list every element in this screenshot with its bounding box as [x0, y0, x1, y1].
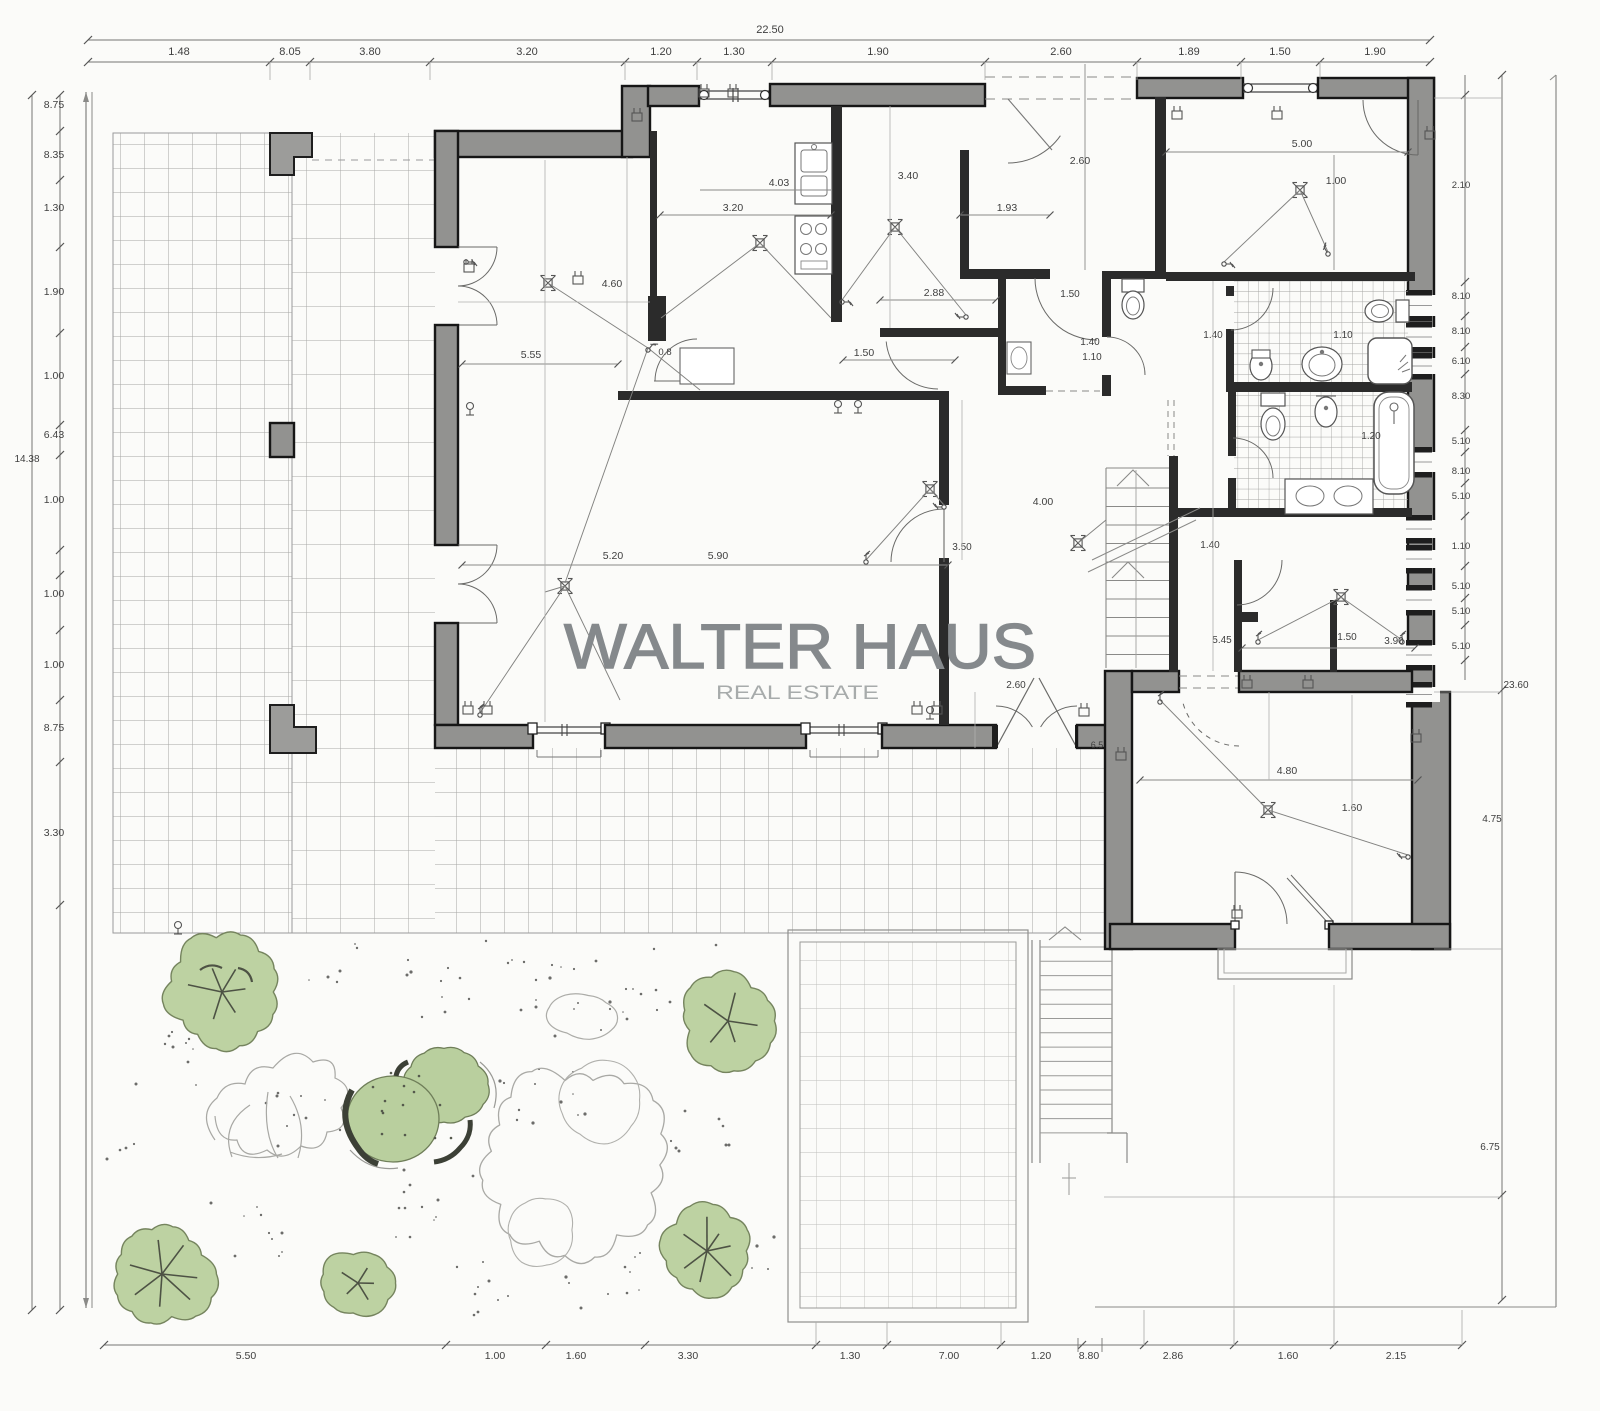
svg-text:1.50: 1.50: [1337, 632, 1357, 643]
svg-text:8.75: 8.75: [44, 99, 65, 111]
svg-text:8.05: 8.05: [279, 46, 300, 58]
svg-text:6.5: 6.5: [1091, 740, 1104, 750]
svg-text:4.80: 4.80: [1277, 765, 1298, 777]
svg-text:8.35: 8.35: [44, 149, 65, 161]
svg-text:5.20: 5.20: [603, 550, 624, 562]
svg-text:4.03: 4.03: [769, 177, 790, 189]
svg-text:8.75: 8.75: [44, 722, 65, 734]
svg-text:2.15: 2.15: [1386, 1350, 1407, 1362]
svg-text:3.20: 3.20: [723, 202, 744, 214]
svg-text:2.60: 2.60: [1050, 46, 1071, 58]
svg-text:5.10: 5.10: [1452, 581, 1471, 592]
svg-text:3.30: 3.30: [678, 1350, 699, 1362]
svg-text:1.10: 1.10: [1452, 541, 1471, 552]
svg-text:2.10: 2.10: [1452, 180, 1471, 191]
svg-text:1.30: 1.30: [723, 46, 744, 58]
svg-text:6.43: 6.43: [44, 429, 65, 441]
svg-text:1.20: 1.20: [1361, 431, 1381, 442]
svg-text:1.30: 1.30: [840, 1350, 861, 1362]
svg-text:5.55: 5.55: [521, 349, 542, 361]
svg-text:23.60: 23.60: [1503, 680, 1528, 691]
svg-text:1.90: 1.90: [44, 286, 65, 298]
svg-text:1.60: 1.60: [566, 1350, 587, 1362]
svg-text:1.00: 1.00: [44, 588, 65, 600]
svg-text:1.20: 1.20: [1031, 1350, 1052, 1362]
svg-text:14.38: 14.38: [14, 454, 39, 465]
svg-text:2.86: 2.86: [1163, 1350, 1184, 1362]
svg-text:4.75: 4.75: [1482, 814, 1502, 825]
svg-text:4.00: 4.00: [1033, 496, 1054, 508]
svg-text:REAL ESTATE: REAL ESTATE: [716, 683, 879, 704]
svg-text:1.50: 1.50: [1269, 46, 1290, 58]
svg-text:1.00: 1.00: [1326, 175, 1347, 187]
svg-text:7.00: 7.00: [939, 1350, 960, 1362]
svg-text:2.88: 2.88: [924, 287, 945, 299]
svg-text:5.00: 5.00: [1292, 138, 1313, 150]
svg-text:1.60: 1.60: [1278, 1350, 1299, 1362]
svg-text:8.30: 8.30: [1452, 391, 1471, 402]
svg-text:5.10: 5.10: [1452, 491, 1471, 502]
svg-text:1.10: 1.10: [1082, 352, 1102, 363]
svg-text:3.40: 3.40: [898, 170, 919, 182]
svg-text:22.50: 22.50: [756, 24, 784, 36]
svg-text:1.00: 1.00: [44, 659, 65, 671]
svg-text:1.48: 1.48: [168, 46, 189, 58]
svg-text:1.90: 1.90: [1364, 46, 1385, 58]
svg-text:1.00: 1.00: [44, 370, 65, 382]
svg-text:5.10: 5.10: [1452, 641, 1471, 652]
svg-text:0.8: 0.8: [658, 347, 671, 358]
svg-text:1.10: 1.10: [1333, 330, 1353, 341]
svg-text:3.20: 3.20: [516, 46, 537, 58]
svg-text:3.30: 3.30: [44, 827, 65, 839]
svg-text:1.40: 1.40: [1200, 540, 1220, 551]
svg-text:1.89: 1.89: [1178, 46, 1199, 58]
svg-text:5.10: 5.10: [1452, 436, 1471, 447]
svg-text:5.50: 5.50: [236, 1350, 257, 1362]
svg-text:5.10: 5.10: [1452, 606, 1471, 617]
svg-text:1.40: 1.40: [1080, 337, 1100, 348]
svg-text:1.90: 1.90: [867, 46, 888, 58]
svg-text:8.80: 8.80: [1079, 1350, 1100, 1362]
svg-text:3.90: 3.90: [1384, 636, 1404, 647]
svg-text:6.10: 6.10: [1452, 356, 1471, 367]
svg-text:5.90: 5.90: [708, 550, 729, 562]
svg-text:5.45: 5.45: [1212, 635, 1232, 646]
svg-text:8.10: 8.10: [1452, 291, 1471, 302]
svg-text:1.30: 1.30: [44, 202, 65, 214]
svg-text:3.80: 3.80: [359, 46, 380, 58]
svg-text:1.50: 1.50: [1060, 289, 1080, 300]
svg-text:1.20: 1.20: [650, 46, 671, 58]
svg-text:4.60: 4.60: [602, 278, 623, 290]
svg-text:8.10: 8.10: [1452, 466, 1471, 477]
svg-text:2.60: 2.60: [1070, 155, 1091, 167]
svg-text:1.93: 1.93: [997, 202, 1018, 214]
svg-text:1.00: 1.00: [485, 1350, 506, 1362]
svg-text:6.75: 6.75: [1480, 1142, 1500, 1153]
svg-text:1.50: 1.50: [854, 347, 875, 359]
svg-text:WALTER HAUS: WALTER HAUS: [564, 612, 1036, 682]
svg-text:1.00: 1.00: [44, 494, 65, 506]
svg-text:8.10: 8.10: [1452, 326, 1471, 337]
